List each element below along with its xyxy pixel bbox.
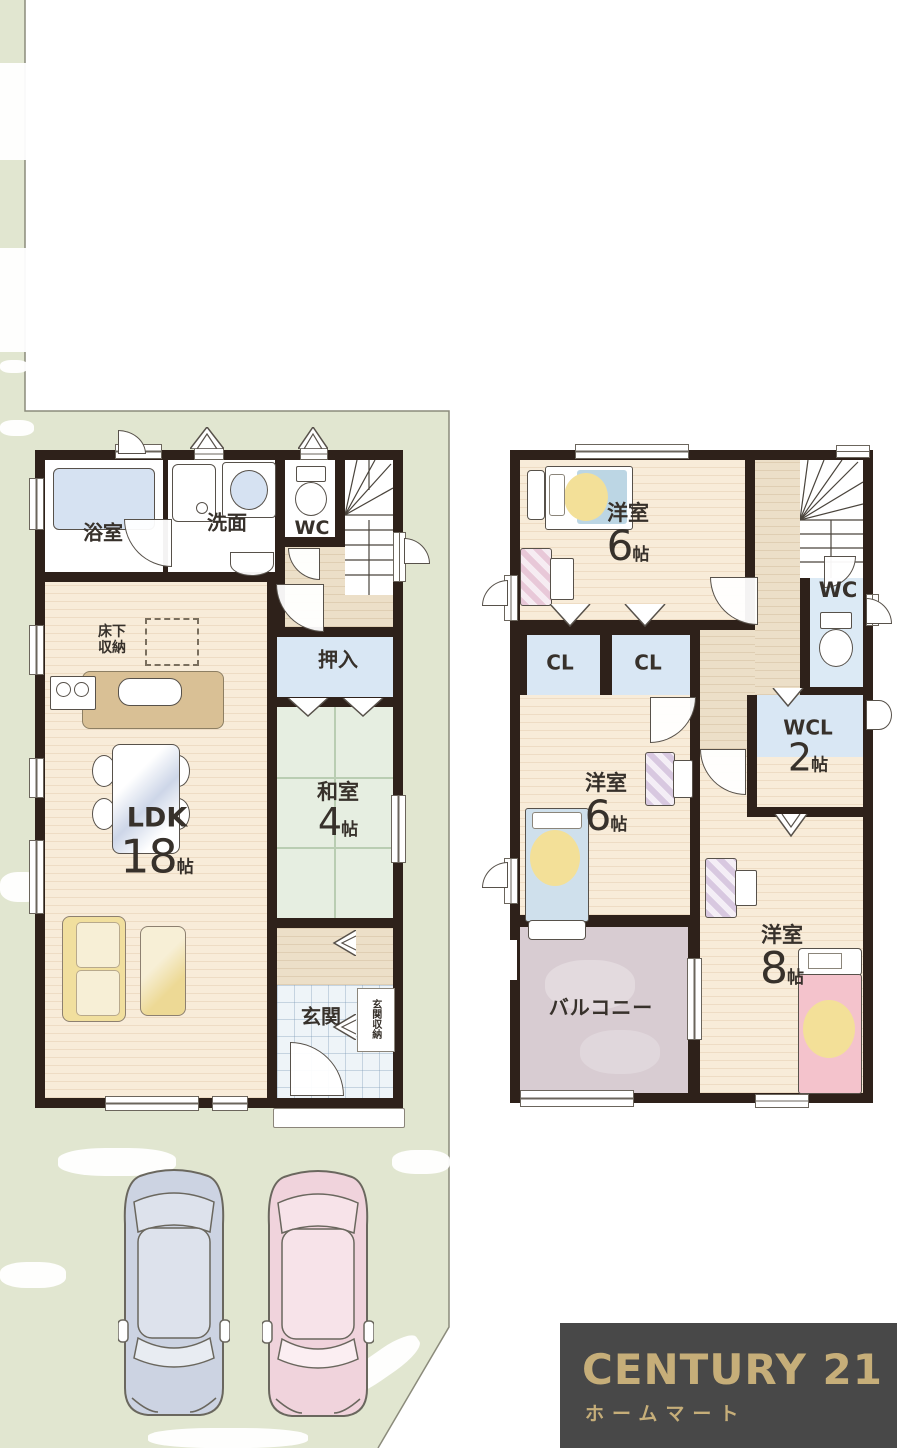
bed-north-pillow	[549, 474, 565, 516]
label-wcl: WCL 2帖	[783, 718, 832, 779]
logo-company-text: ホームマート	[585, 1399, 746, 1426]
closet-door-marks	[283, 698, 393, 718]
balcony-highlight	[580, 1030, 660, 1074]
balcony-railing	[520, 1090, 634, 1107]
label-wcl-size: 2	[788, 736, 811, 780]
label-bedroom-north: 洋室 6帖	[607, 502, 650, 568]
label-cl-b: CL	[634, 652, 661, 675]
label-bedroom-north-size: 6	[607, 521, 633, 570]
logo-brand-text: CENTURY 21	[582, 1345, 883, 1394]
label-entrance-storage: 玄関収納	[369, 999, 381, 1039]
paper-streak	[392, 1150, 450, 1174]
label-bedroom-west-unit: 帖	[610, 815, 627, 835]
underfloor-storage-box	[145, 618, 199, 666]
label-entrance: 玄関	[301, 1006, 341, 1029]
window	[105, 1096, 199, 1111]
label-oshiire: 押入	[318, 649, 358, 672]
window	[212, 1096, 248, 1111]
window	[29, 840, 44, 914]
closet-door-marks	[772, 814, 810, 838]
shoe-storage-chevron	[332, 930, 356, 956]
door-washroom	[230, 552, 274, 576]
label-bedroom-east-unit: 帖	[787, 968, 804, 988]
paper-streak	[0, 360, 28, 373]
burner	[74, 682, 89, 697]
toilet-tank-1f	[296, 466, 326, 482]
window	[687, 958, 702, 1040]
window	[755, 1094, 809, 1108]
window	[29, 758, 44, 798]
label-bath: 浴室	[83, 522, 123, 545]
bed-west-blanket	[530, 830, 580, 886]
label-washroom: 洗面	[207, 512, 247, 535]
desk	[673, 760, 693, 798]
window	[575, 444, 689, 459]
paper-streak	[0, 63, 26, 160]
wcl-left-wall	[747, 695, 757, 817]
label-ldk: LDK 18帖	[120, 805, 194, 882]
label-balcony: バルコニー	[549, 997, 654, 1020]
label-ldk-size: 18	[120, 830, 177, 884]
label-wcl-unit: 帖	[811, 756, 828, 776]
vent-triangle	[298, 427, 328, 449]
paper-streak	[0, 248, 26, 352]
ottoman	[140, 926, 186, 1016]
desk-chair	[520, 548, 552, 606]
label-wc-1f: WC	[295, 518, 330, 540]
label-bedroom-east-size: 8	[760, 943, 787, 994]
label-bedroom-west: 洋室 6帖	[585, 772, 628, 838]
label-washitsu-unit: 帖	[341, 820, 358, 840]
vanity-basin	[230, 470, 268, 510]
sofa-cushion	[76, 922, 120, 968]
bed-east-headboard-inner	[808, 953, 842, 969]
paper-streak	[0, 1262, 66, 1288]
window	[391, 795, 406, 863]
stairs-1f	[345, 460, 393, 595]
car-blue	[118, 1162, 230, 1420]
hallway-2f-upper	[755, 460, 800, 695]
bed-east-blanket	[803, 1000, 855, 1058]
burner	[56, 682, 71, 697]
awning-window	[866, 700, 892, 730]
window	[836, 445, 870, 458]
sofa-cushion	[76, 970, 120, 1016]
window	[194, 448, 224, 460]
bed-west-footboard	[528, 920, 586, 940]
closet-door-marks	[770, 688, 806, 708]
label-ldk-unit: 帖	[177, 858, 194, 878]
window	[29, 625, 44, 675]
label-bedroom-east: 洋室 8帖	[760, 924, 804, 992]
vent-triangle	[190, 427, 224, 449]
window	[300, 448, 328, 460]
paper-streak	[0, 420, 34, 436]
bed-west-pillow	[532, 812, 582, 829]
kitchen-sink	[118, 678, 182, 706]
bed-north-blanket	[564, 473, 608, 521]
label-ldk-name: LDK	[120, 805, 194, 833]
porch-step	[273, 1108, 405, 1128]
toilet-tank-2f	[820, 612, 852, 629]
closet-door-marks	[545, 604, 675, 628]
label-underfloor: 床下収納	[95, 624, 129, 656]
window	[29, 478, 44, 530]
tatami-line	[277, 777, 393, 779]
desk	[550, 558, 574, 600]
toilet-bowl-2f	[819, 629, 853, 667]
car-pink	[262, 1163, 374, 1421]
desk-chair	[705, 858, 737, 918]
toilet-bowl-1f	[295, 482, 327, 516]
century21-logo: CENTURY 21 ホームマート	[560, 1323, 897, 1448]
label-cl-a: CL	[546, 652, 573, 675]
paper-streak	[148, 1428, 308, 1448]
desk	[735, 870, 757, 906]
label-bedroom-north-unit: 帖	[632, 545, 649, 565]
tatami-line	[277, 847, 393, 849]
label-washitsu-size: 4	[318, 800, 341, 844]
label-washitsu: 和室 4帖	[317, 781, 359, 843]
label-bedroom-west-size: 6	[585, 791, 611, 840]
balcony-opening	[505, 940, 517, 980]
floorplan-canvas: 浴室 洗面 WC 床下収納 押入 LDK 18帖 和室 4帖 玄関 玄関収納	[0, 0, 897, 1448]
label-wc-2f: WC	[819, 578, 858, 602]
bed-north-headboard	[527, 470, 545, 520]
desk-chair	[645, 752, 675, 806]
